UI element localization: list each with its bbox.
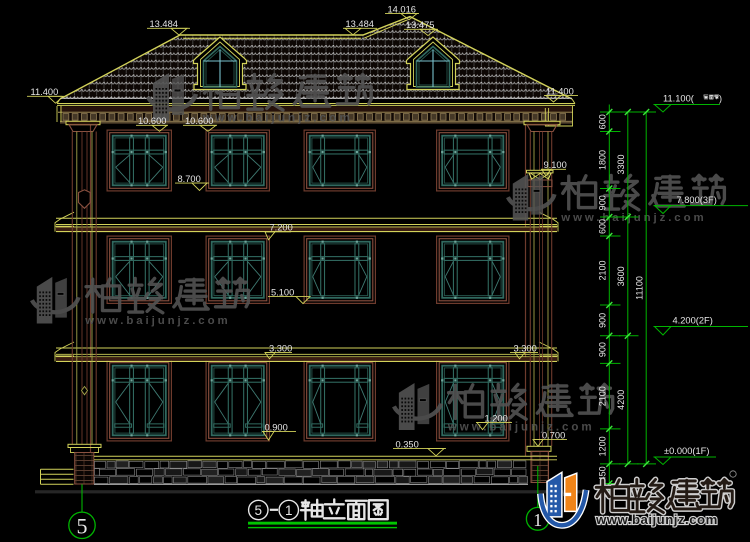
svg-text:7.800(3F): 7.800(3F) bbox=[677, 195, 717, 205]
svg-text:0.700: 0.700 bbox=[542, 430, 565, 440]
svg-text:±0.000(1F): ±0.000(1F) bbox=[664, 446, 709, 456]
svg-text:13.484: 13.484 bbox=[150, 19, 178, 29]
svg-text:5: 5 bbox=[77, 513, 88, 538]
svg-text:900: 900 bbox=[598, 313, 608, 328]
svg-text:10.600: 10.600 bbox=[138, 116, 166, 126]
svg-text:): ) bbox=[719, 94, 722, 104]
svg-text:0.350: 0.350 bbox=[396, 439, 419, 449]
svg-text:4.200(2F): 4.200(2F) bbox=[673, 316, 713, 326]
svg-text:600: 600 bbox=[598, 114, 608, 129]
svg-text:3300: 3300 bbox=[616, 154, 626, 174]
svg-text:11.400: 11.400 bbox=[31, 87, 59, 97]
svg-text:1.200: 1.200 bbox=[485, 413, 508, 423]
svg-text:www.baijunjz.com: www.baijunjz.com bbox=[447, 421, 595, 433]
svg-text:www.baijunjz.com: www.baijunjz.com bbox=[560, 212, 706, 224]
svg-text:11100: 11100 bbox=[635, 276, 645, 300]
svg-text:11.100(: 11.100( bbox=[663, 94, 695, 104]
svg-text:1: 1 bbox=[285, 503, 293, 518]
svg-text:1800: 1800 bbox=[598, 150, 608, 170]
svg-text:3.300: 3.300 bbox=[514, 343, 537, 353]
svg-text:5.100: 5.100 bbox=[271, 287, 294, 297]
svg-text:14.016: 14.016 bbox=[388, 4, 416, 14]
svg-text:0.900: 0.900 bbox=[265, 422, 288, 432]
svg-text:1: 1 bbox=[533, 510, 542, 530]
svg-text:4200: 4200 bbox=[616, 390, 626, 410]
svg-text:900: 900 bbox=[598, 342, 608, 357]
svg-text:www.baijunjz.com: www.baijunjz.com bbox=[595, 512, 718, 527]
svg-text:8.700: 8.700 bbox=[178, 174, 201, 184]
svg-text:5: 5 bbox=[255, 503, 263, 518]
svg-text:1200: 1200 bbox=[598, 436, 608, 456]
svg-text:9.100: 9.100 bbox=[544, 160, 567, 170]
svg-text:10.600: 10.600 bbox=[185, 116, 213, 126]
svg-text:13.475: 13.475 bbox=[406, 20, 434, 30]
svg-text:www.baijunjz.com: www.baijunjz.com bbox=[84, 315, 230, 327]
svg-text:2100: 2100 bbox=[598, 260, 608, 280]
svg-text:13.484: 13.484 bbox=[346, 19, 374, 29]
svg-text:www.baijunjz.com: www.baijunjz.com bbox=[202, 111, 353, 125]
svg-text:3600: 3600 bbox=[616, 266, 626, 286]
svg-text:11.400: 11.400 bbox=[546, 86, 574, 96]
svg-text:900: 900 bbox=[598, 195, 608, 210]
svg-text:7.200: 7.200 bbox=[270, 223, 293, 233]
svg-text:2100: 2100 bbox=[598, 386, 608, 406]
svg-text:3.300: 3.300 bbox=[269, 343, 292, 353]
svg-text:600: 600 bbox=[598, 219, 608, 234]
